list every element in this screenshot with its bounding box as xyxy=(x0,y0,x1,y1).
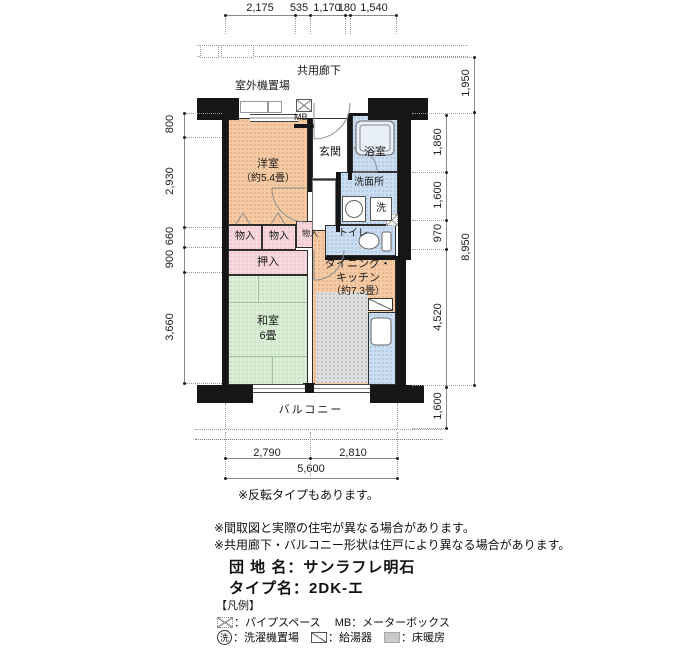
dimension-extension xyxy=(186,113,222,114)
dim-right-inner-1: 1,860 xyxy=(432,120,444,164)
note-reverse: ※反転タイプもあります。 xyxy=(238,486,379,503)
storage-door-mark xyxy=(271,213,285,224)
legend-water-heater: ：給湯器 xyxy=(328,629,372,645)
type-name-label: タイプ名： xyxy=(229,580,309,597)
dimension-tick xyxy=(183,112,186,115)
dimension-tick xyxy=(224,477,227,480)
type-name-value: 2DK-エ xyxy=(309,580,364,597)
dimension-extension xyxy=(412,428,448,429)
legend-row-1: ：パイプスペース MB：メーターボックス xyxy=(217,614,450,630)
dimension-extension xyxy=(350,18,351,34)
dimension-tick xyxy=(445,427,448,430)
dimension-extension xyxy=(397,432,398,476)
entrance-door-arc xyxy=(314,103,350,139)
dimension-tick xyxy=(183,136,186,139)
dimension-extension xyxy=(186,383,222,384)
dimension-tick xyxy=(473,56,476,59)
dimension-extension xyxy=(412,172,448,173)
dim-right-outer-1: 1,950 xyxy=(460,61,472,105)
dim-left-2: 2,930 xyxy=(164,159,176,203)
bathroom-label: 浴室 xyxy=(352,146,398,159)
western-room-door-arc xyxy=(272,188,306,222)
dimension-extension xyxy=(225,432,226,476)
dimension-line xyxy=(474,57,475,386)
mb-label: MB xyxy=(294,112,308,122)
japanese-room-label: 和室 xyxy=(228,315,308,328)
dimension-extension xyxy=(396,18,397,34)
dimension-tick xyxy=(183,246,186,249)
dim-right-inner-4: 4,520 xyxy=(432,295,444,339)
water-heater-icon xyxy=(311,632,327,643)
toilet-tank xyxy=(382,232,391,251)
balcony-side-line xyxy=(397,403,398,429)
dimension-line xyxy=(225,478,398,479)
washroom-label: 洗面所 xyxy=(338,177,400,189)
dimension-tick xyxy=(183,271,186,274)
dimension-line xyxy=(446,115,447,429)
floor-plan-page: 2,175 535 1,170 180 1,540 共用廊下 室外機置場 xyxy=(0,0,700,650)
legend-floor-heating: ：床暖房 xyxy=(401,629,445,645)
closet-label: 押入 xyxy=(228,256,308,269)
western-room-label: 洋室 xyxy=(228,158,308,171)
estate-name-value: サンラフレ明石 xyxy=(303,559,415,576)
dimension-extension xyxy=(186,272,222,273)
dim-left-4: 900 xyxy=(164,237,176,281)
dimension-extension xyxy=(412,113,476,114)
balcony-outer-line xyxy=(195,439,443,440)
note-2: ※共用廊下・バルコニー形状は住戸により異なる場合があります。 xyxy=(214,536,570,553)
note-1: ※間取図と実際の住宅が異なる場合があります。 xyxy=(214,519,475,536)
type-name-row: タイプ名：2DK-エ xyxy=(229,577,364,598)
dimension-extension xyxy=(412,220,448,221)
dimension-extension xyxy=(412,57,476,58)
legend-heading: 【凡例】 xyxy=(216,600,260,613)
dimension-tick xyxy=(445,248,448,251)
storage-label-2: 物入 xyxy=(262,231,296,243)
dimension-tick xyxy=(396,477,399,480)
legend-meter-box: MB：メーターボックス xyxy=(335,614,450,630)
entrance-label: 玄関 xyxy=(312,146,348,159)
western-room-size: （約5.4畳） xyxy=(224,173,312,185)
washroom-sink xyxy=(346,201,363,218)
japanese-room-size: 6畳 xyxy=(228,330,308,343)
storage-label-3: 物入 xyxy=(296,229,324,238)
dimension-extension xyxy=(412,249,448,250)
legend-row-2: 洗 ：洗濯機置場 ：給湯器 ：床暖房 xyxy=(217,629,445,645)
dimension-tick xyxy=(445,114,448,117)
estate-name-row: 団 地 名：サンラフレ明石 xyxy=(229,556,415,577)
dk-label-1: ダイニング・ xyxy=(310,258,406,271)
dk-size: （約7.3畳） xyxy=(310,286,406,298)
dimension-tick xyxy=(445,386,448,389)
legend-pipe-space: ：パイプスペース xyxy=(234,614,321,630)
dim-right-outer-2: 8,950 xyxy=(460,225,472,269)
toilet-label: トイレ xyxy=(325,228,381,240)
dimension-tick xyxy=(183,226,186,229)
dk-label-2: キッチン xyxy=(310,272,406,285)
dimension-tick xyxy=(309,14,312,17)
dimension-extension xyxy=(310,432,311,476)
legend-washer-space: ：洗濯機置場 xyxy=(233,629,299,645)
dimension-tick xyxy=(344,14,347,17)
dimension-extension xyxy=(186,137,222,138)
balcony-edge-line xyxy=(195,429,443,430)
dimension-tick xyxy=(396,457,399,460)
dimension-extension xyxy=(345,18,346,34)
kitchen-sink xyxy=(371,318,391,345)
floor-heating-icon xyxy=(384,632,400,643)
dimension-extension xyxy=(310,18,311,34)
storage-door-mark xyxy=(236,213,250,224)
dim-left-5: 3,660 xyxy=(164,305,176,349)
dimension-tick xyxy=(349,14,352,17)
washer-label: 洗 xyxy=(370,203,392,215)
dim-right-inner-5: 1,600 xyxy=(432,384,444,428)
dimension-extension xyxy=(412,385,476,386)
balcony-label: バルコニー xyxy=(261,404,361,417)
dimension-tick xyxy=(224,14,227,17)
dim-left-1: 800 xyxy=(164,102,176,146)
pipe-space-icon xyxy=(217,617,233,628)
dimension-tick xyxy=(224,457,227,460)
washer-circle-icon: 洗 xyxy=(217,630,232,645)
storage-label-1: 物入 xyxy=(228,231,262,243)
dim-bottom-total: 5,600 xyxy=(286,463,336,476)
dimension-tick xyxy=(309,457,312,460)
dimension-extension xyxy=(295,18,296,34)
dimension-extension xyxy=(186,247,222,248)
dimension-tick xyxy=(473,384,476,387)
dimension-extension xyxy=(186,227,222,228)
dimension-tick xyxy=(294,14,297,17)
dimension-tick xyxy=(183,382,186,385)
dimension-tick xyxy=(395,14,398,17)
estate-name-label: 団 地 名： xyxy=(229,559,303,576)
dimension-extension xyxy=(225,18,226,34)
dimension-tick xyxy=(445,171,448,174)
balcony-side-line xyxy=(225,403,226,429)
dimension-tick xyxy=(445,219,448,222)
dimension-tick xyxy=(473,111,476,114)
